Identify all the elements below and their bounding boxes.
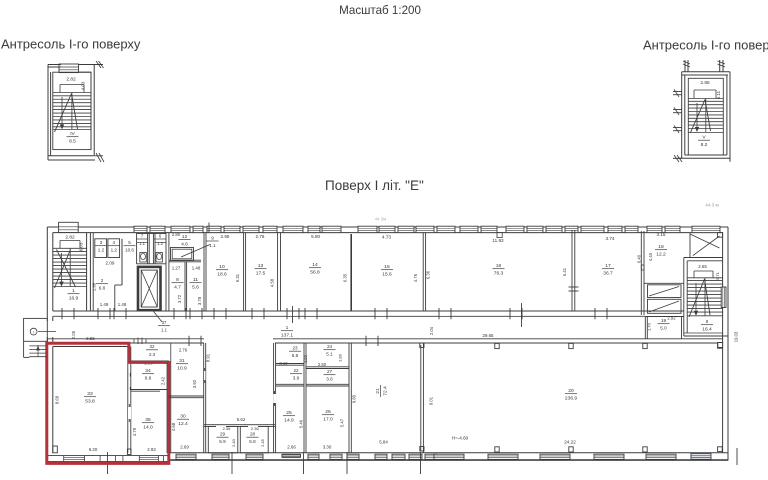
svg-text:2.66: 2.66 [287,445,296,450]
svg-text:15: 15 [384,264,390,270]
svg-text:4.6: 4.6 [181,241,188,247]
svg-text:35: 35 [145,417,151,423]
svg-text:23: 23 [292,346,298,351]
svg-text:1.1: 1.1 [209,243,216,248]
svg-text:6: 6 [159,233,162,238]
svg-text:1.49: 1.49 [100,302,109,307]
svg-text:6.20: 6.20 [89,447,98,452]
svg-text:17: 17 [605,263,611,269]
svg-text:19: 19 [661,318,667,323]
svg-text:9: 9 [211,235,214,240]
svg-text:2.40: 2.40 [231,438,236,447]
svg-text:3.78: 3.78 [197,296,202,305]
svg-text:3.9: 3.9 [293,376,300,381]
svg-text:1.2: 1.2 [111,248,118,253]
svg-text:12.4: 12.4 [178,421,188,427]
svg-text:2.36: 2.36 [223,426,232,431]
svg-text:21: 21 [375,388,381,394]
svg-text:31: 31 [179,358,185,364]
svg-text:3.15: 3.15 [657,232,666,237]
svg-text:19.03: 19.03 [734,331,739,342]
svg-text:1: 1 [72,288,75,294]
svg-text:28: 28 [250,432,256,437]
svg-text:5.71: 5.71 [715,271,720,280]
svg-text:ІV: ІV [70,131,75,137]
svg-text:5.6: 5.6 [192,285,199,291]
svg-text:4.03: 4.03 [81,81,86,90]
svg-text:1.98: 1.98 [92,282,97,291]
svg-text:72.4: 72.4 [382,386,388,396]
svg-text:3.6: 3.6 [326,377,333,382]
svg-text:12.2: 12.2 [656,252,666,258]
svg-text:16.4: 16.4 [702,327,712,333]
svg-text:Масштаб 1:200: Масштаб 1:200 [339,4,421,17]
svg-text:4.7: 4.7 [174,285,181,291]
svg-text:1.27: 1.27 [172,266,181,271]
svg-text:ІІ: ІІ [706,319,709,325]
svg-text:36.7: 36.7 [603,271,613,277]
svg-text:5: 5 [128,240,131,245]
svg-text:1.48: 1.48 [118,302,127,307]
svg-text:4.76: 4.76 [413,273,418,282]
svg-text:2.50: 2.50 [318,362,327,367]
svg-text:6.55: 6.55 [86,336,95,341]
svg-text:5.62: 5.62 [237,417,246,422]
svg-text:34: 34 [145,368,151,374]
svg-text:2.04: 2.04 [429,326,434,335]
svg-text:5.1: 5.1 [326,352,333,357]
svg-text:236.9: 236.9 [565,396,578,402]
svg-text:8.2: 8.2 [701,142,708,148]
svg-text:8: 8 [176,277,179,283]
svg-text:15.6: 15.6 [382,272,392,278]
svg-text:1.89: 1.89 [337,353,342,362]
svg-text:32: 32 [150,344,155,349]
svg-text:4.68: 4.68 [171,422,176,431]
svg-text:5.46: 5.46 [298,419,303,428]
svg-text:9.80: 9.80 [352,394,357,403]
svg-text:30: 30 [180,414,186,420]
svg-text:5.8: 5.8 [292,353,299,358]
svg-text:2.82: 2.82 [66,77,76,83]
svg-text:26: 26 [325,409,331,415]
svg-text:І: І [33,330,34,334]
svg-text:4: 4 [113,240,116,245]
svg-text:4.58: 4.58 [270,278,275,287]
svg-text:6.36: 6.36 [426,270,431,279]
svg-text:9.01: 9.01 [428,396,433,405]
svg-text:Н=-4.60: Н=-4.60 [452,436,469,441]
svg-text:56.8: 56.8 [310,270,320,276]
svg-text:2.05: 2.05 [71,330,76,339]
svg-text:4.40: 4.40 [648,252,653,261]
svg-text:137.1: 137.1 [281,333,294,339]
svg-text:2.36: 2.36 [251,426,260,431]
svg-text:2.65: 2.65 [698,264,707,269]
svg-text:44.3 м: 44.3 м [705,203,718,208]
svg-text:18.6: 18.6 [217,272,227,278]
svg-text:5.8: 5.8 [249,439,256,444]
svg-text:2.69: 2.69 [180,445,189,450]
svg-text:3.92: 3.92 [192,379,197,388]
svg-text:1.1: 1.1 [161,328,167,333]
svg-text:3.12: 3.12 [279,361,288,366]
svg-text:16.9: 16.9 [69,296,79,302]
svg-text:5.84: 5.84 [379,440,388,445]
svg-text:13: 13 [258,263,264,269]
svg-text:10.9: 10.9 [177,366,187,372]
svg-text:5.47: 5.47 [339,418,344,427]
svg-text:6.31: 6.31 [235,273,240,282]
svg-text:44 3м: 44 3м [375,217,387,222]
svg-text:8.5: 8.5 [69,139,76,145]
svg-text:3.72: 3.72 [177,294,182,303]
svg-text:Антресоль І-го поверху: Антресоль І-го поверху [643,38,768,53]
svg-text:33: 33 [87,391,93,397]
svg-text:6.11: 6.11 [716,90,721,99]
svg-text:2.80: 2.80 [172,232,181,237]
svg-text:25: 25 [286,410,292,416]
svg-text:20: 20 [568,388,574,394]
svg-text:2.3: 2.3 [149,352,156,357]
svg-text:37: 37 [162,320,167,325]
svg-text:17.0: 17.0 [323,417,333,423]
svg-text:3.74: 3.74 [606,236,615,241]
svg-text:5.80: 5.80 [311,234,320,239]
svg-text:6.6: 6.6 [145,376,152,382]
svg-text:8.68: 8.68 [55,395,60,404]
svg-text:1.48: 1.48 [192,266,201,271]
svg-text:2.42: 2.42 [161,376,166,385]
svg-text:1.1: 1.1 [139,241,145,246]
svg-text:2.85: 2.85 [700,80,710,86]
svg-text:11: 11 [193,277,198,283]
svg-text:29: 29 [220,432,226,437]
svg-text:27: 27 [327,369,333,374]
svg-text:7: 7 [141,233,144,238]
svg-text:10: 10 [219,264,225,270]
svg-text:8.91: 8.91 [205,353,210,362]
svg-text:6.8: 6.8 [99,286,106,291]
svg-text:1.70: 1.70 [647,322,652,331]
svg-text:1.2: 1.2 [98,248,105,253]
svg-text:2.09: 2.09 [106,261,115,266]
svg-text:4.73: 4.73 [382,235,391,240]
svg-text:2.45: 2.45 [260,438,265,447]
svg-text:6.35: 6.35 [343,273,348,282]
svg-text:5.0: 5.0 [660,326,667,331]
svg-text:Антресоль І-го поверху: Антресоль І-го поверху [1,36,141,51]
svg-text:18: 18 [658,244,664,250]
svg-text:1.2: 1.2 [157,241,163,246]
svg-text:10.6: 10.6 [125,248,134,253]
svg-text:14: 14 [312,262,318,268]
svg-text:5.9: 5.9 [219,439,226,444]
svg-text:14.9: 14.9 [284,418,294,424]
svg-text:14.0: 14.0 [143,425,153,431]
svg-text:6.40: 6.40 [637,254,642,263]
svg-text:2.92: 2.92 [147,447,156,452]
svg-text:3: 3 [100,240,103,245]
svg-text:24.22: 24.22 [564,440,576,445]
svg-text:2.82: 2.82 [65,235,75,241]
svg-text:76.3: 76.3 [494,271,504,277]
svg-text:6.41: 6.41 [562,267,567,276]
svg-text:3.30: 3.30 [323,445,332,450]
svg-text:16: 16 [496,263,502,269]
svg-text:2.92: 2.92 [667,316,676,321]
svg-text:Поверх І літ. "Е": Поверх І літ. "Е" [325,178,424,193]
svg-text:2.76: 2.76 [179,348,188,353]
svg-text:53.8: 53.8 [85,399,95,405]
svg-text:V: V [702,135,706,141]
svg-text:24: 24 [327,344,333,349]
svg-text:1: 1 [286,325,289,331]
svg-text:17.5: 17.5 [256,271,266,277]
svg-text:22: 22 [293,368,299,373]
svg-text:2: 2 [101,278,104,283]
svg-text:6.03: 6.03 [79,242,84,251]
svg-text:4.79: 4.79 [132,427,137,436]
svg-text:2.76: 2.76 [256,234,265,239]
svg-text:12: 12 [182,234,188,240]
svg-text:2.95: 2.95 [221,234,230,239]
svg-text:29.65: 29.65 [483,333,495,338]
svg-text:11.93: 11.93 [492,238,504,243]
